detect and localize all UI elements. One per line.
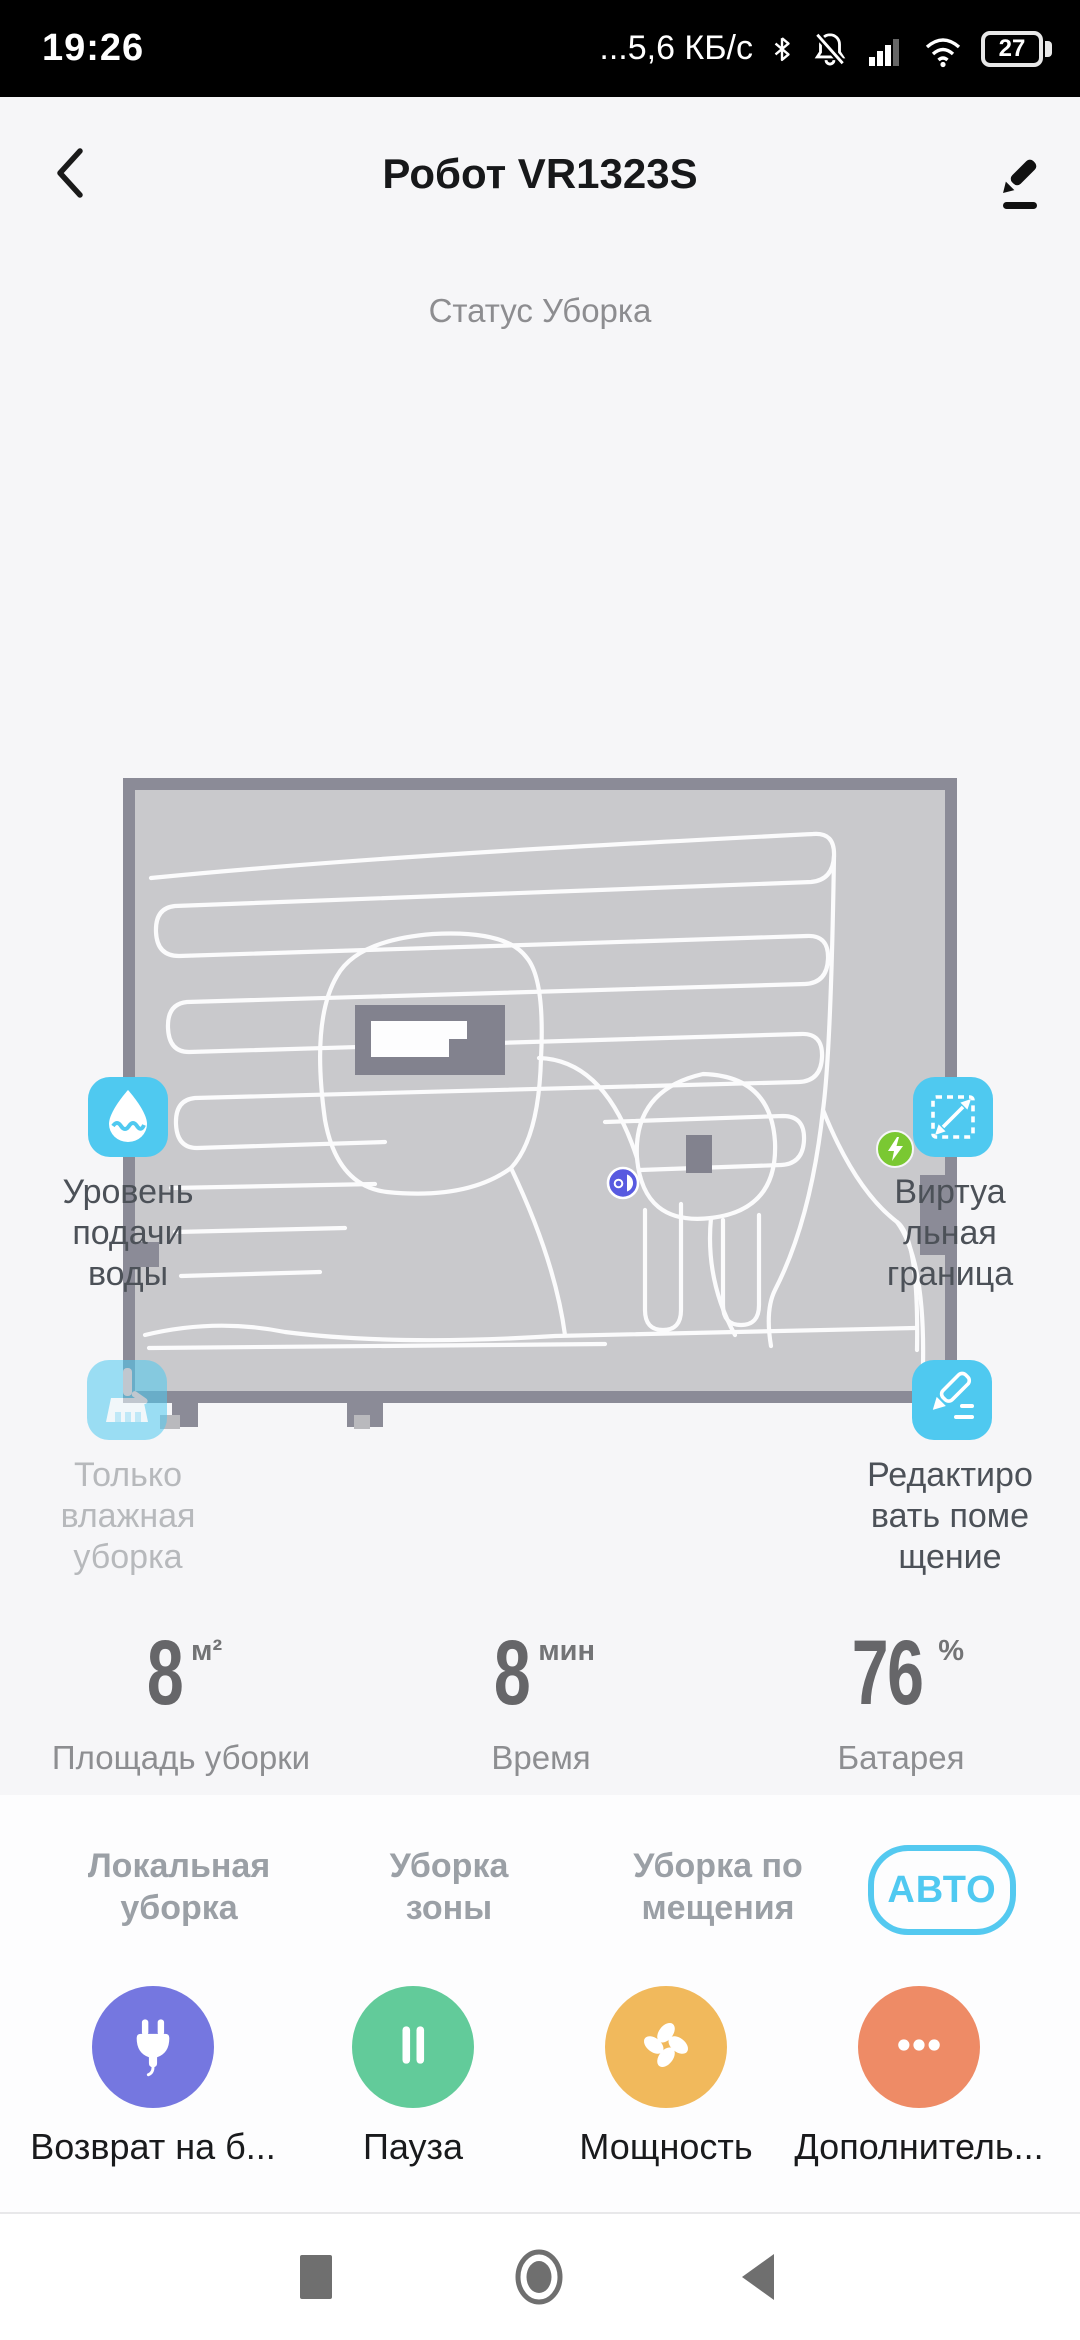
map-canvas[interactable] [123, 778, 957, 1403]
recents-square-icon [299, 2254, 333, 2305]
pause-button[interactable] [352, 1986, 474, 2108]
fan-icon [631, 2010, 701, 2085]
pencil-icon [987, 150, 1053, 221]
power-button[interactable] [605, 1986, 727, 2108]
water-level-button[interactable] [88, 1077, 168, 1157]
dock-marker [355, 1005, 505, 1075]
mode-local-cleaning[interactable]: Локальная уборка [49, 1845, 309, 1929]
robot-marker [608, 1168, 638, 1198]
status-bar: 19:26 ...5,6 КБ/с [0, 0, 1080, 97]
battery-percent: 27 [999, 35, 1026, 63]
stat-unit: мин [538, 1635, 595, 1668]
stat-label: Время [361, 1739, 721, 1777]
stat-label: Батарея [721, 1739, 1080, 1777]
virtual-boundary-button[interactable] [913, 1077, 993, 1157]
network-speed: ...5,6 КБ/с [599, 29, 753, 68]
water-drop-icon [88, 1077, 168, 1157]
mop-icon [87, 1360, 167, 1440]
stat-cleaning-area: 8м² Площадь уборки [1, 1625, 361, 1777]
obstacle-marker [686, 1135, 712, 1173]
auto-label: АВТО [887, 1869, 996, 1912]
edit-room-icon [912, 1360, 992, 1440]
cleaning-path-drawing [135, 790, 945, 1391]
edit-room-label: Редактиро вать поме щение [830, 1455, 1070, 1578]
return-to-base-label: Возврат на б... [13, 2126, 293, 2168]
stat-battery: 76% Батарея [721, 1625, 1080, 1777]
robot-status-text: Статус Уборка [0, 292, 1080, 330]
wifi-icon [921, 29, 965, 69]
more-dots-icon [884, 2010, 954, 2085]
stat-value: 8 [147, 1625, 182, 1721]
pause-icon [378, 2010, 448, 2085]
edit-room-button[interactable] [912, 1360, 992, 1440]
stat-value: 8 [494, 1625, 529, 1721]
pause-label: Пауза [273, 2126, 553, 2168]
charging-badge-icon [876, 1130, 914, 1173]
recents-button[interactable] [276, 2244, 356, 2314]
edit-title-button[interactable] [975, 140, 1065, 230]
mop-only-button[interactable] [87, 1360, 167, 1440]
stat-label: Площадь уборки [1, 1739, 361, 1777]
more-options-button[interactable] [858, 1986, 980, 2108]
mode-zone-cleaning[interactable]: Уборка зоны [319, 1845, 579, 1929]
stat-value: 76 [852, 1625, 923, 1721]
home-circle-icon [514, 2248, 564, 2311]
bluetooth-icon [769, 29, 795, 69]
battery-icon: 27 [981, 31, 1052, 67]
back-nav-button[interactable] [718, 2244, 798, 2314]
app-screen: 19:26 ...5,6 КБ/с [0, 0, 1080, 2340]
signal-icon [865, 29, 905, 69]
map-doorway-nub-light [354, 1415, 370, 1429]
clock: 19:26 [42, 27, 144, 70]
plug-icon [118, 2010, 188, 2085]
notifications-off-icon [811, 29, 849, 69]
virtual-boundary-icon [913, 1077, 993, 1157]
return-to-base-button[interactable] [92, 1986, 214, 2108]
mode-auto-button[interactable]: АВТО [868, 1845, 1016, 1935]
stat-unit: % [938, 1635, 964, 1668]
power-label: Мощность [526, 2126, 806, 2168]
mop-only-label: Только влажная уборка [8, 1455, 248, 1578]
back-triangle-icon [742, 2254, 774, 2305]
mode-room-cleaning[interactable]: Уборка по мещения [588, 1845, 848, 1929]
water-level-label: Уровень подачи воды [8, 1172, 248, 1295]
virtual-boundary-label: Виртуа льная граница [830, 1172, 1070, 1295]
stat-unit: м² [191, 1635, 222, 1668]
home-button[interactable] [499, 2244, 579, 2314]
stat-time: 8мин Время [361, 1625, 721, 1777]
more-options-label: Дополнитель... [779, 2126, 1059, 2168]
page-title: Робот VR1323S [0, 150, 1080, 198]
